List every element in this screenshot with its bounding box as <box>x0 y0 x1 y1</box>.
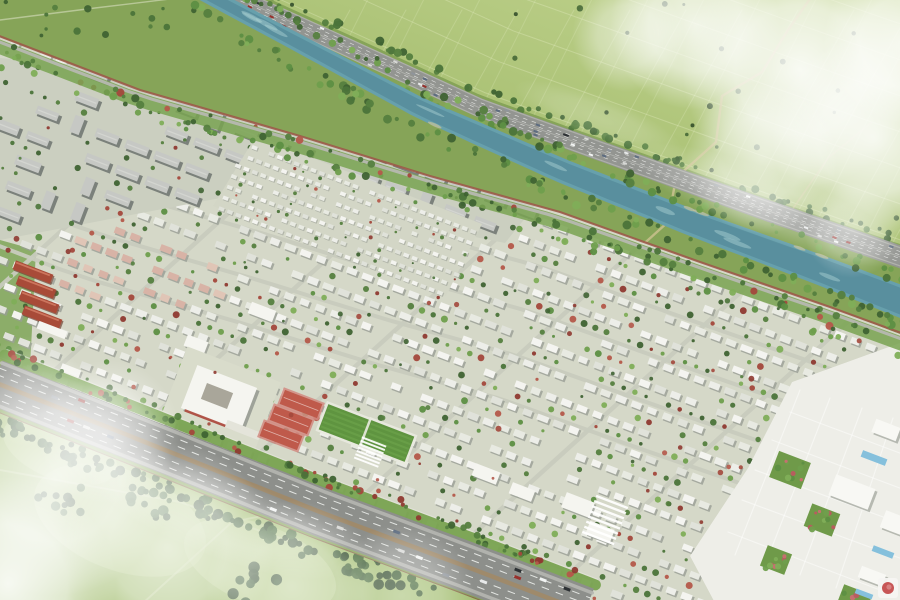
tree <box>692 339 695 342</box>
tree <box>190 421 194 425</box>
tree <box>454 322 457 325</box>
aerial-masterplan-render <box>0 0 900 600</box>
tree <box>567 155 573 161</box>
tree <box>337 37 343 43</box>
tree <box>508 243 514 249</box>
tree <box>601 304 606 309</box>
tree <box>73 27 80 34</box>
tree <box>656 189 661 194</box>
tree <box>775 563 781 569</box>
tree <box>148 24 152 28</box>
tree <box>802 314 806 318</box>
tree <box>406 53 413 60</box>
tree <box>109 93 117 101</box>
tree <box>454 420 459 425</box>
tree <box>752 306 759 313</box>
tree <box>311 291 316 296</box>
tree <box>118 211 123 216</box>
tree <box>75 299 81 305</box>
tree <box>587 235 593 241</box>
tree <box>209 113 213 117</box>
tree <box>240 337 247 344</box>
tree <box>501 265 506 270</box>
tree <box>296 136 304 144</box>
tree <box>518 552 522 556</box>
tree <box>377 248 381 252</box>
tree <box>536 303 543 310</box>
tree <box>191 119 196 124</box>
tree <box>833 302 838 307</box>
tree <box>19 157 22 160</box>
tree <box>725 298 730 303</box>
tree <box>743 257 749 263</box>
tree <box>131 94 139 102</box>
tree <box>289 413 294 418</box>
tree <box>85 141 89 145</box>
tree <box>513 213 517 217</box>
tree <box>629 364 635 370</box>
tree <box>91 330 94 333</box>
tree <box>498 338 503 343</box>
tree <box>322 394 327 399</box>
tree <box>510 97 517 104</box>
tree <box>218 329 224 335</box>
tree <box>674 479 681 486</box>
tree <box>502 117 508 123</box>
tree <box>143 317 146 320</box>
tree <box>616 433 620 437</box>
tree <box>452 494 455 497</box>
tree <box>259 133 266 140</box>
tree <box>379 42 383 46</box>
tree <box>728 475 734 481</box>
tree <box>500 122 507 129</box>
tree <box>703 441 708 446</box>
tree <box>552 531 559 538</box>
tree <box>238 40 244 46</box>
tree <box>31 70 38 77</box>
tree <box>478 354 485 361</box>
tree <box>666 402 671 407</box>
tree <box>635 317 640 322</box>
tree <box>301 471 309 479</box>
tree <box>330 372 337 379</box>
tree <box>623 221 632 230</box>
tree <box>530 559 535 564</box>
tree <box>217 16 223 22</box>
tree <box>423 91 430 98</box>
tree <box>806 308 810 312</box>
tree <box>485 505 491 511</box>
tree <box>159 121 164 126</box>
tree <box>566 561 572 567</box>
tree <box>432 233 435 236</box>
tree <box>397 496 404 503</box>
tree <box>775 465 782 472</box>
tree <box>243 261 246 264</box>
tree <box>447 134 456 143</box>
tree <box>782 293 788 299</box>
tree <box>328 347 333 352</box>
tree <box>156 256 162 262</box>
tree <box>368 160 376 168</box>
tree <box>99 309 102 312</box>
tree <box>637 244 642 249</box>
tree <box>36 151 41 156</box>
tree <box>282 328 289 335</box>
tree <box>358 157 363 162</box>
tree <box>676 257 680 261</box>
tree <box>395 231 398 234</box>
tree <box>198 188 204 194</box>
tree <box>774 557 778 561</box>
tree <box>527 399 531 403</box>
tree <box>686 582 693 589</box>
tree <box>440 93 448 101</box>
tree <box>627 339 631 343</box>
tree <box>122 95 126 99</box>
tree <box>24 146 28 150</box>
tree <box>203 9 212 18</box>
tree <box>776 346 783 353</box>
tree <box>474 532 481 539</box>
tree <box>825 517 830 522</box>
tree <box>671 453 678 460</box>
tree <box>423 432 429 438</box>
tree <box>51 266 55 270</box>
tree <box>465 326 469 330</box>
tree <box>177 107 182 112</box>
tree <box>418 462 421 465</box>
tree <box>81 109 87 115</box>
tree <box>220 435 225 440</box>
tree <box>261 322 265 326</box>
tree <box>366 100 374 108</box>
tree <box>294 151 300 157</box>
tree <box>314 187 318 191</box>
tree <box>238 312 243 317</box>
tree <box>280 304 284 308</box>
tree <box>170 356 173 359</box>
tree <box>353 479 359 485</box>
tree <box>766 343 771 348</box>
tree <box>680 432 686 438</box>
tree <box>464 192 469 197</box>
tree <box>12 56 17 61</box>
tree <box>345 402 350 407</box>
tree <box>207 325 212 330</box>
tree <box>380 415 385 420</box>
tree <box>149 111 153 115</box>
tree <box>811 360 816 365</box>
tree <box>607 257 611 261</box>
tree <box>256 215 258 217</box>
tree <box>244 364 249 369</box>
tree <box>677 407 682 412</box>
tree <box>594 425 597 428</box>
tree <box>285 147 290 152</box>
tree <box>665 303 671 309</box>
tree <box>688 286 693 291</box>
tree <box>30 59 35 64</box>
tree <box>161 141 164 144</box>
tree <box>413 354 420 361</box>
tree <box>408 303 415 310</box>
tree <box>883 274 891 282</box>
tree <box>600 574 606 580</box>
tree <box>863 328 870 335</box>
tree <box>524 471 529 476</box>
tree <box>302 171 304 173</box>
tree <box>694 365 698 369</box>
tree <box>572 201 581 210</box>
tree <box>525 299 531 305</box>
tree <box>623 584 626 587</box>
tree <box>287 462 294 469</box>
tree <box>541 429 544 432</box>
tree <box>509 441 515 447</box>
tree <box>44 27 47 30</box>
tree <box>857 338 862 343</box>
tree <box>290 307 296 313</box>
tree <box>604 329 610 335</box>
tree <box>567 331 572 336</box>
tree <box>431 312 436 317</box>
tree <box>632 390 637 395</box>
tree <box>718 250 726 258</box>
tree <box>642 566 647 571</box>
tree <box>809 526 815 532</box>
tree <box>9 274 13 278</box>
tree <box>666 501 671 506</box>
tree <box>689 412 692 415</box>
tree <box>52 5 58 11</box>
tree <box>729 289 736 296</box>
tree <box>414 453 421 460</box>
tree <box>785 475 791 481</box>
tree <box>495 313 499 317</box>
tree <box>201 431 208 438</box>
tree <box>440 488 445 493</box>
tree <box>453 228 456 231</box>
tree <box>432 185 438 191</box>
tree <box>300 385 305 390</box>
tree <box>714 446 719 451</box>
tree <box>626 169 634 177</box>
tree <box>820 339 824 343</box>
tree <box>161 7 164 10</box>
tree <box>349 47 356 54</box>
tree <box>14 171 18 175</box>
tree <box>583 292 589 298</box>
tree <box>257 48 261 52</box>
tree <box>340 222 343 225</box>
tree <box>518 420 523 425</box>
tree <box>739 465 743 469</box>
tree <box>848 300 856 308</box>
tree <box>544 553 549 558</box>
tree <box>730 403 735 408</box>
tree <box>778 274 786 282</box>
tree <box>53 71 58 76</box>
tree <box>842 347 846 351</box>
tree <box>387 296 390 299</box>
tree <box>372 494 377 499</box>
tree <box>56 100 60 104</box>
tree <box>121 218 125 222</box>
tree <box>811 328 817 334</box>
tree <box>757 363 764 370</box>
tree <box>665 575 669 579</box>
tree <box>509 127 518 136</box>
tree <box>652 569 659 576</box>
tree <box>628 536 633 541</box>
tree <box>856 306 862 312</box>
tree <box>235 219 238 222</box>
tree <box>196 321 201 326</box>
tree <box>532 548 538 554</box>
tree <box>437 463 442 468</box>
tree <box>553 261 558 266</box>
tree <box>264 445 270 451</box>
tree <box>562 240 566 244</box>
tree <box>322 19 329 26</box>
tree <box>646 419 652 425</box>
tree <box>469 199 477 207</box>
tree <box>461 397 468 404</box>
tree <box>841 591 846 596</box>
tree <box>653 472 657 476</box>
tree <box>404 505 408 509</box>
tree <box>592 325 598 331</box>
tree <box>514 289 517 292</box>
tree <box>828 334 833 339</box>
tree <box>496 426 502 432</box>
tree <box>567 571 573 577</box>
tree <box>781 303 788 310</box>
tree <box>621 386 626 391</box>
tree <box>407 173 411 177</box>
tree <box>73 274 77 278</box>
tree <box>314 236 318 240</box>
tree <box>436 222 439 225</box>
tree <box>264 217 267 220</box>
tree <box>6 248 11 253</box>
tree <box>495 410 501 416</box>
tree <box>596 200 602 206</box>
tree <box>849 295 855 301</box>
tree <box>687 312 694 319</box>
tree <box>484 236 487 239</box>
tree <box>719 398 724 403</box>
tree <box>493 386 497 390</box>
tree <box>78 324 85 331</box>
tree <box>633 587 639 593</box>
tree <box>458 372 465 379</box>
tree <box>334 18 342 26</box>
tree <box>627 437 632 442</box>
tree <box>683 360 687 364</box>
tree <box>124 155 130 161</box>
tree <box>504 544 509 549</box>
tree <box>373 364 377 368</box>
tree <box>774 296 779 301</box>
tree <box>259 2 264 7</box>
tree <box>620 286 627 293</box>
tree <box>626 179 635 188</box>
tree <box>285 134 292 141</box>
tree <box>454 302 459 307</box>
tree <box>185 120 190 125</box>
tree <box>456 347 461 352</box>
tree <box>295 20 300 25</box>
tree <box>761 390 767 396</box>
tree <box>718 300 723 305</box>
tree <box>831 525 835 529</box>
tree <box>390 187 395 192</box>
tree <box>481 535 486 540</box>
tree <box>744 334 748 338</box>
tree <box>266 372 271 377</box>
tree <box>266 130 273 137</box>
corner-watermark-badge <box>878 578 898 598</box>
tree <box>207 130 211 134</box>
tree <box>356 314 361 319</box>
tree <box>105 206 109 210</box>
tree <box>166 334 170 338</box>
tree <box>470 278 475 283</box>
tree <box>268 298 275 305</box>
tree <box>573 304 577 308</box>
tree <box>30 91 34 95</box>
tree <box>443 194 448 199</box>
tree <box>611 480 615 484</box>
tree <box>177 176 180 179</box>
tree <box>151 166 155 170</box>
tree <box>544 356 547 359</box>
tree <box>705 369 709 373</box>
tree <box>607 243 611 247</box>
tree <box>678 506 683 511</box>
tree <box>164 106 170 112</box>
tree <box>618 262 621 265</box>
tree <box>877 311 884 318</box>
tree <box>240 239 246 245</box>
tree <box>123 243 129 249</box>
tree <box>272 47 279 54</box>
tree <box>408 120 415 127</box>
tree <box>189 430 195 436</box>
tree <box>196 222 200 226</box>
tree <box>369 221 372 224</box>
tree <box>885 321 890 326</box>
tree <box>763 317 769 323</box>
tree <box>329 476 336 483</box>
tree <box>482 381 487 386</box>
tree <box>525 132 532 139</box>
tree <box>385 67 391 73</box>
tree <box>515 394 521 400</box>
tree <box>700 416 705 421</box>
tree <box>577 467 582 472</box>
tree <box>712 276 717 281</box>
tree <box>384 369 387 372</box>
tree <box>173 311 180 318</box>
tree <box>529 522 536 529</box>
tree <box>386 48 390 52</box>
tree <box>540 330 545 335</box>
tree <box>323 73 329 79</box>
